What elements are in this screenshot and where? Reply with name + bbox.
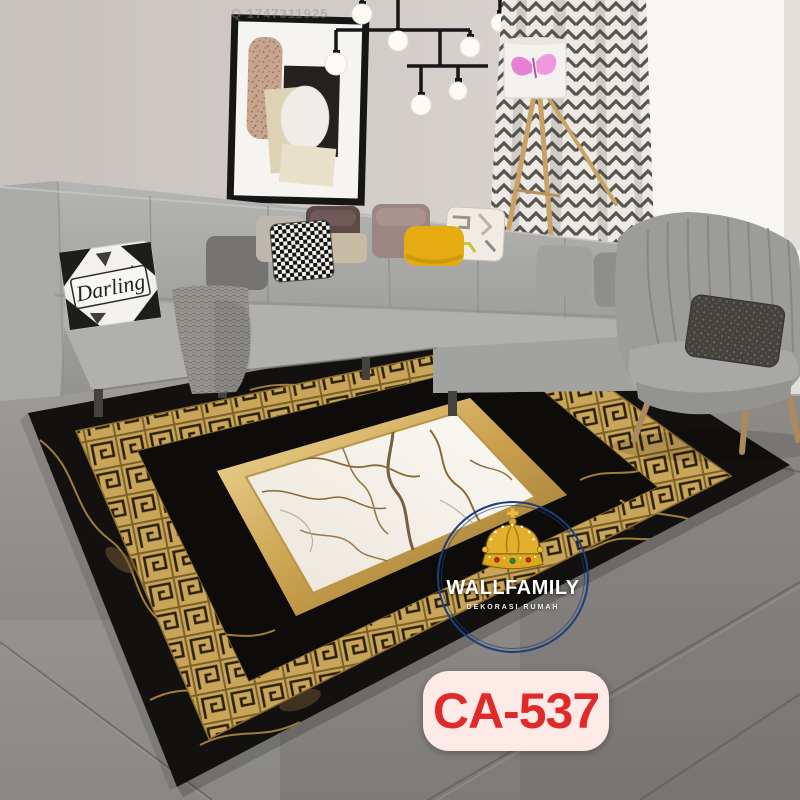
brand-tagline: DEKORASI RUMAH xyxy=(437,604,589,611)
pillow-yellow xyxy=(404,226,464,266)
pillow-grey-right-1 xyxy=(535,245,594,298)
room-photo: Darling xyxy=(0,0,800,800)
brand-watermark-logo: WALLFAMILY DEKORASI RUMAH xyxy=(437,501,589,653)
pillow-darling: Darling xyxy=(59,240,161,330)
photo-id-watermark: Q 1747311925 xyxy=(231,6,328,21)
crown-icon xyxy=(468,507,558,573)
armchair-pillow xyxy=(684,294,786,368)
product-code: CA-537 xyxy=(433,682,599,740)
product-photo: Darling Q 1747311925 xyxy=(0,0,800,800)
pillow-houndstooth xyxy=(270,219,335,282)
product-code-badge: CA-537 xyxy=(423,671,609,751)
brand-name: WALLFAMILY xyxy=(429,577,597,600)
wall-art-frame xyxy=(227,14,370,206)
